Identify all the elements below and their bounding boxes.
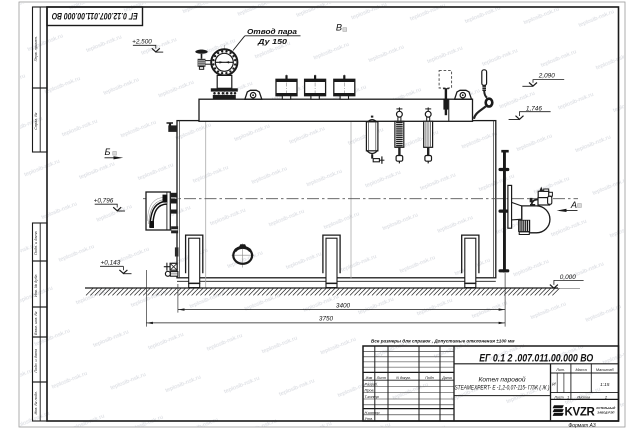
- svg-text:КОТЕЛЬНЫЙ: КОТЕЛЬНЫЙ: [596, 406, 616, 410]
- svg-text:Отвод пара: Отвод пара: [247, 27, 297, 36]
- svg-text:Все размеры для справок , Допу: Все размеры для справок , Допустимые отк…: [371, 339, 515, 344]
- svg-text:Масштаб: Масштаб: [596, 368, 615, 372]
- svg-text:2,090: 2,090: [538, 73, 555, 80]
- svg-text:Котел паровой: Котел паровой: [479, 377, 527, 384]
- svg-text:И: И: [552, 382, 556, 388]
- svg-text:Справ. №: Справ. №: [34, 113, 38, 130]
- svg-text:+0,796: +0,796: [94, 197, 114, 204]
- svg-text:3400: 3400: [336, 302, 351, 309]
- svg-text:0,000: 0,000: [560, 274, 576, 281]
- svg-text:Разраб.: Разраб.: [365, 382, 379, 386]
- svg-text:Утв.: Утв.: [365, 417, 374, 421]
- svg-text:Инв. № подл.: Инв. № подл.: [34, 391, 38, 415]
- svg-text:+0,143: +0,143: [101, 259, 121, 266]
- svg-text:Подп: Подп: [425, 376, 434, 380]
- svg-text:ЗАВОД РЭП: ЗАВОД РЭП: [597, 411, 615, 415]
- svg-text:Изм: Изм: [366, 376, 373, 380]
- svg-text:Формат А3: Формат А3: [568, 423, 596, 429]
- svg-text:STEAMEXPERT- Е -1,2-0,07-115-: STEAMEXPERT- Е -1,2-0,07-115- ГЛЖ ( Ж ): [455, 385, 550, 391]
- svg-text:Т.контр: Т.контр: [365, 395, 379, 399]
- svg-text:Взам. инв. №: Взам. инв. №: [34, 311, 38, 334]
- svg-text:ЕГ 0.12.007.011.00.000 ВО: ЕГ 0.12.007.011.00.000 ВО: [51, 10, 137, 21]
- svg-text:Подп. и дата: Подп. и дата: [34, 349, 38, 373]
- svg-text:Масса: Масса: [575, 368, 586, 372]
- svg-text:1:15: 1:15: [600, 382, 610, 388]
- svg-text:Перв. примен.: Перв. примен.: [34, 36, 38, 61]
- svg-text:В: В: [336, 22, 342, 32]
- svg-text:3750: 3750: [319, 316, 334, 323]
- svg-text:KVZR: KVZR: [564, 406, 595, 418]
- svg-text:Инв. № дубл.: Инв. № дубл.: [34, 274, 38, 297]
- svg-text:ЕГ 0.1 2 .007.011.00.000 ВО: ЕГ 0.1 2 .007.011.00.000 ВО: [479, 353, 593, 365]
- svg-text:Лист: Лист: [376, 376, 386, 380]
- svg-text:Н.контр: Н.контр: [365, 411, 380, 415]
- svg-text:Ду 150: Ду 150: [257, 37, 288, 46]
- svg-text:Дата: Дата: [441, 376, 451, 380]
- svg-text:1: 1: [567, 396, 569, 400]
- svg-text:Б: Б: [105, 147, 111, 157]
- svg-text:N докум.: N докум.: [396, 376, 411, 380]
- svg-text:Лист: Лист: [553, 396, 563, 400]
- svg-text:А: А: [570, 200, 577, 210]
- svg-text:Листов: Листов: [576, 396, 590, 400]
- svg-text:Подп. и дата: Подп. и дата: [34, 231, 38, 255]
- svg-text:Пров.: Пров.: [365, 389, 375, 393]
- svg-text:Лит.: Лит.: [555, 368, 565, 372]
- svg-text:+2,500: +2,500: [132, 39, 152, 46]
